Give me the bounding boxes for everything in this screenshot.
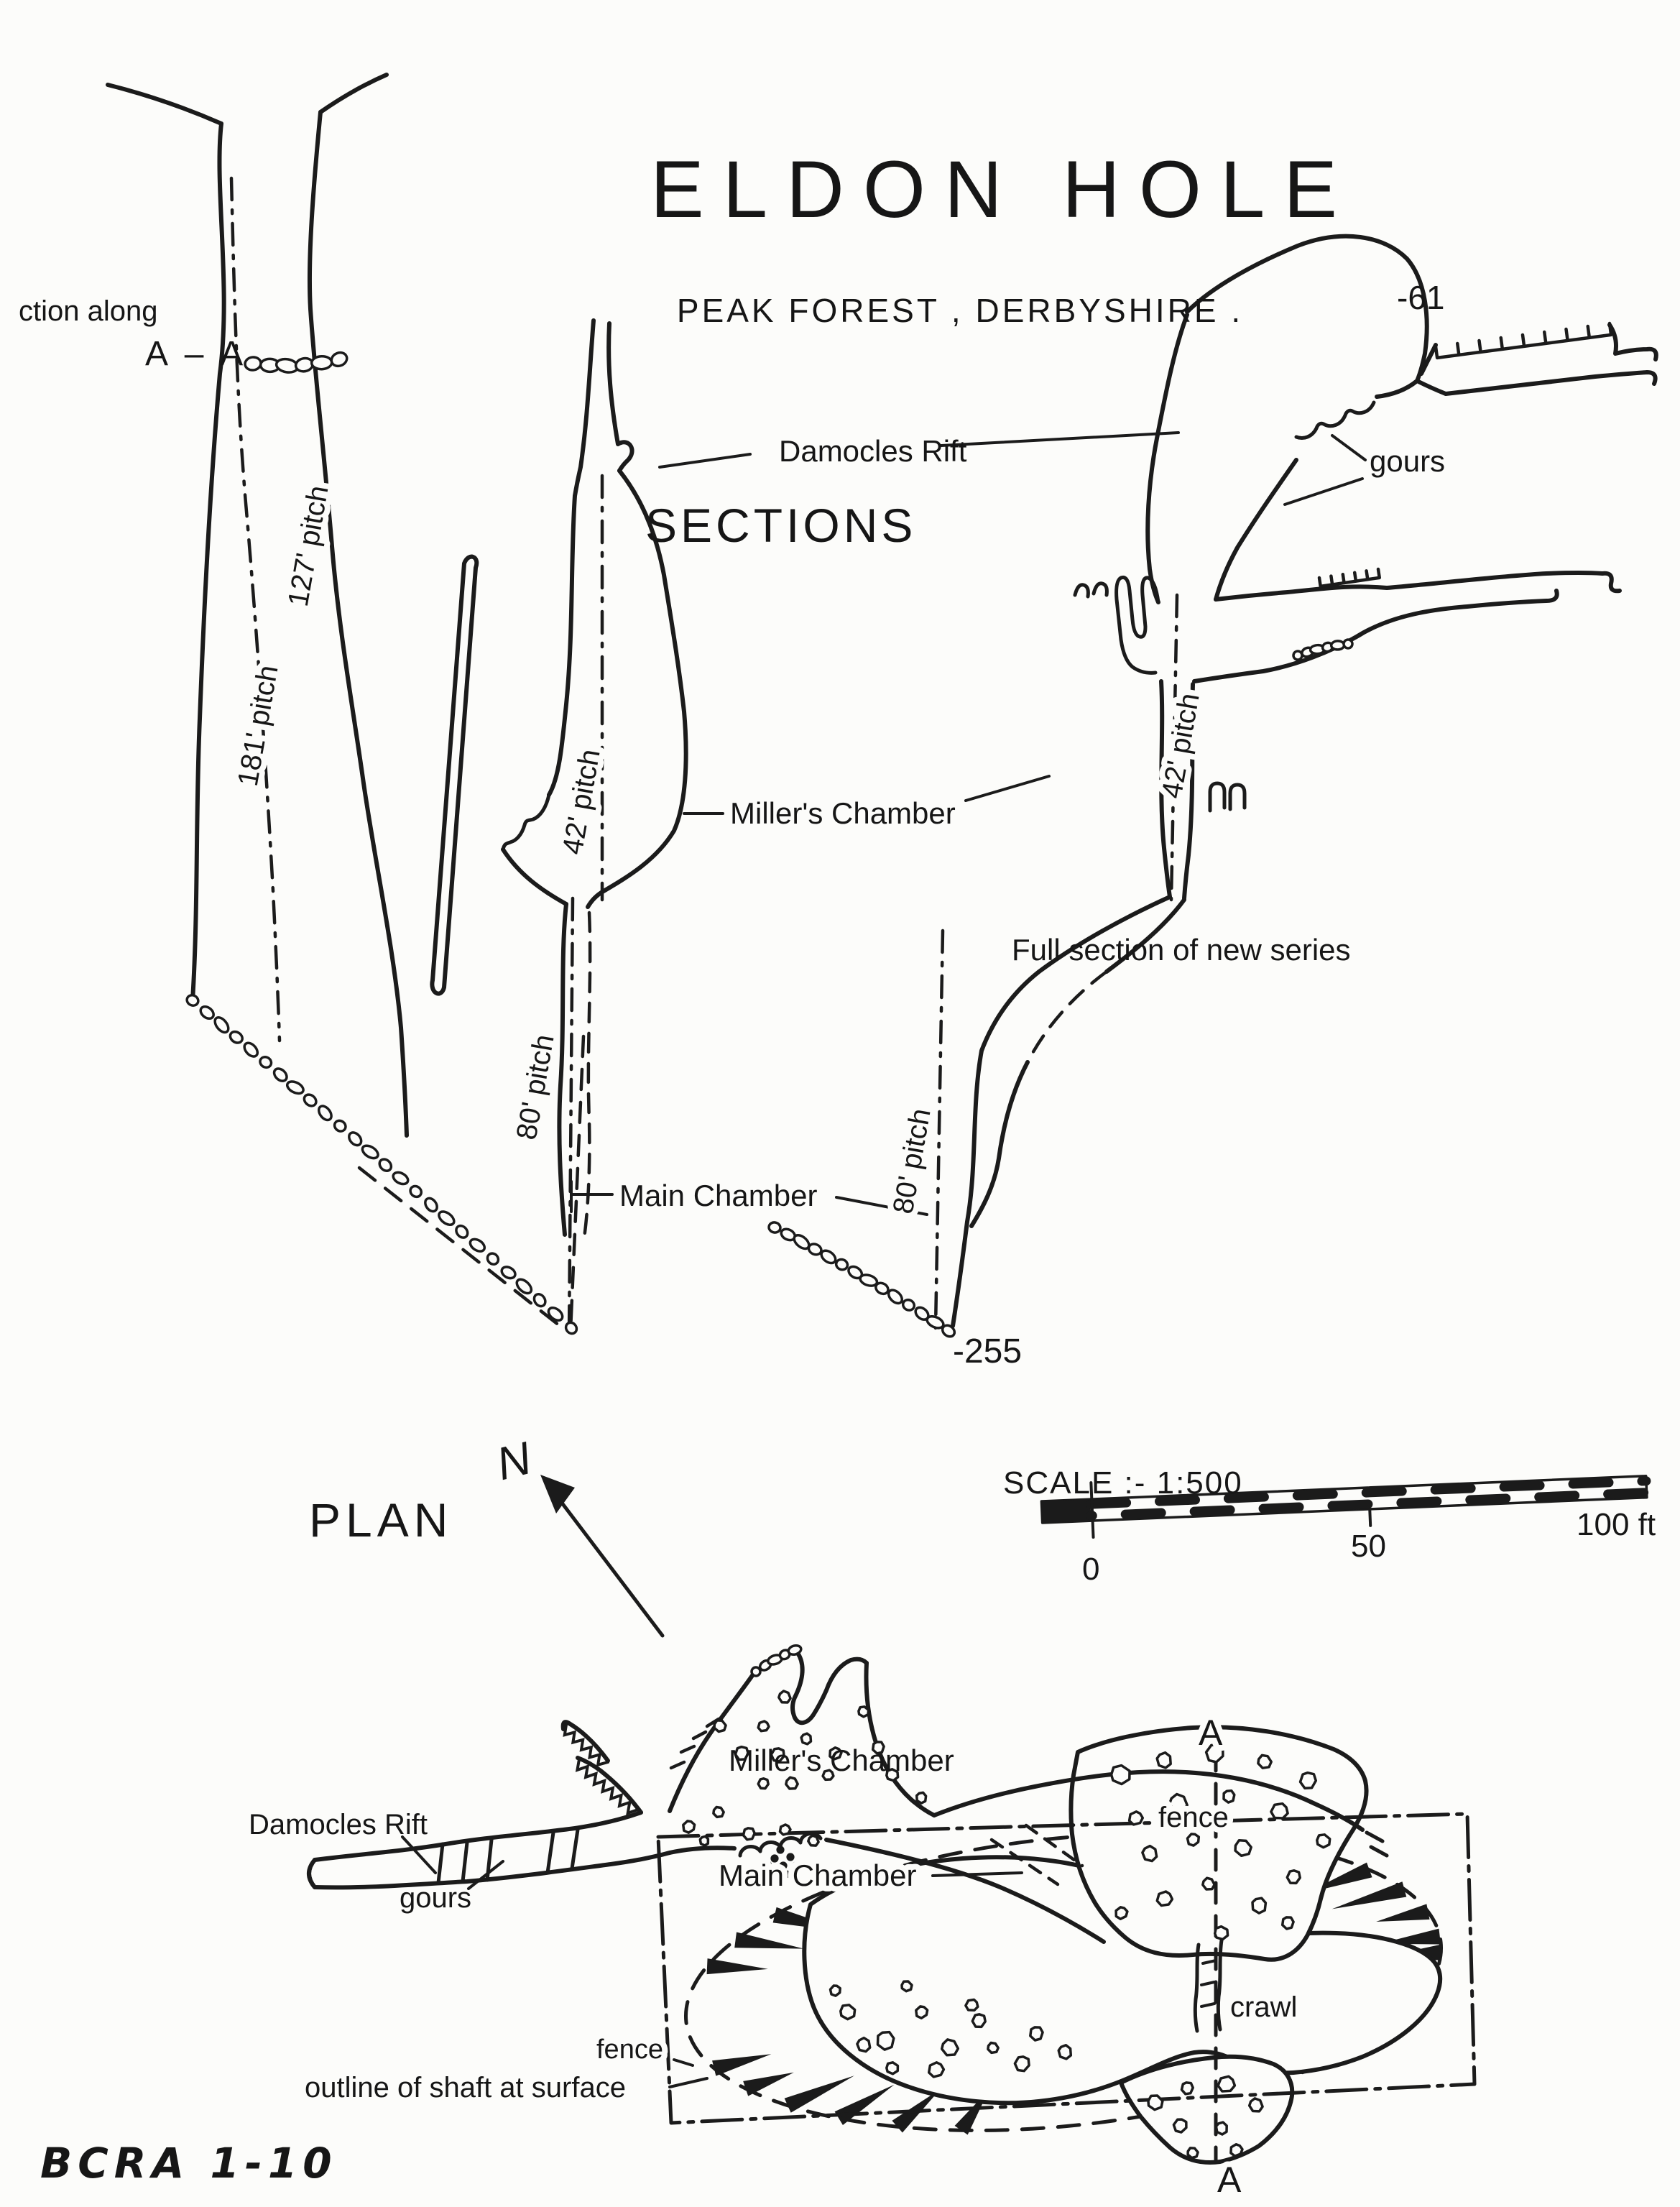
p1-floor bbox=[1446, 372, 1656, 394]
label-pitch-80-right: 80' pitch bbox=[887, 1106, 937, 1216]
section-note-line1: ction along bbox=[19, 295, 157, 327]
plan-drawing bbox=[309, 1460, 1648, 2165]
page-title: ELDON HOLE bbox=[650, 144, 1356, 234]
label-depth-top: -61 bbox=[1397, 279, 1444, 316]
label-gours-plan: gours bbox=[400, 1882, 471, 1914]
label-crawl: crawl bbox=[1230, 1991, 1297, 2023]
gour-dams-nn bbox=[1210, 783, 1245, 811]
north-arrow-head bbox=[540, 1475, 575, 1513]
scale-tick-0: 0 bbox=[1082, 1552, 1099, 1587]
pitch-line-127-181 bbox=[231, 178, 280, 1041]
cave-survey-drawing: ELDON HOLE PEAK FOREST , DERBYSHIRE . ct… bbox=[0, 0, 1680, 2207]
p3-lower-wall-c bbox=[971, 1062, 1028, 1226]
section-note-line2: A – A bbox=[145, 335, 247, 373]
scale-tick-100: 100 ft bbox=[1577, 1507, 1656, 1542]
sections-drawing bbox=[108, 75, 1656, 1339]
double-tick bbox=[1367, 1833, 1387, 1856]
label-a-top: A bbox=[1199, 1713, 1223, 1753]
nw-prong-2 bbox=[563, 1722, 608, 1761]
scale-label: SCALE :- 1:500 bbox=[1003, 1465, 1243, 1501]
east-passage-lower-wall bbox=[670, 1848, 734, 1853]
left-shaft-wall-left bbox=[193, 124, 224, 1000]
sections-heading: SECTIONS bbox=[645, 499, 916, 552]
label-depth-bottom: -255 bbox=[953, 1332, 1022, 1370]
label-fence: fence bbox=[1158, 1802, 1229, 1833]
pitch-line-80-right bbox=[936, 931, 943, 1328]
bowl-gour-arcs bbox=[1296, 402, 1374, 438]
label-pitch-181: 181' pitch bbox=[232, 663, 285, 788]
south-boulder-tongue bbox=[1121, 2057, 1292, 2162]
ne-branch-inner bbox=[793, 1653, 867, 1723]
mid-chamber-wall-left bbox=[549, 496, 575, 795]
p2-floor bbox=[1194, 591, 1557, 681]
label-main-chamber-plan: Main Chamber bbox=[719, 1858, 916, 1892]
north-arrow-line bbox=[559, 1499, 663, 1636]
label-millers-chamber-plan: Miller's Chamber bbox=[729, 1743, 954, 1777]
scale-tick-50: 50 bbox=[1351, 1529, 1386, 1564]
p2-upper-wall bbox=[1216, 573, 1620, 599]
label-full-section: Full section of new series bbox=[1012, 933, 1351, 967]
survey-sheet: ELDON HOLE PEAK FOREST , DERBYSHIRE . ct… bbox=[0, 0, 1680, 2207]
damocles-wiggle bbox=[1075, 584, 1107, 596]
p3-lower-wall-b bbox=[1028, 972, 1107, 1062]
mid-gour-wiggles bbox=[503, 795, 549, 849]
page-subtitle: PEAK FOREST , DERBYSHIRE . bbox=[677, 292, 1243, 329]
left-shaft-wall-right bbox=[310, 112, 407, 1135]
label-pitch-80-left: 80' pitch bbox=[511, 1032, 560, 1142]
label-damocles-rift-section: Damocles Rift bbox=[779, 434, 967, 468]
left-shaft-surface-left bbox=[108, 85, 221, 124]
bowl-step bbox=[1377, 381, 1417, 397]
label-main-chamber-section: Main Chamber bbox=[619, 1179, 817, 1212]
north-letter: N bbox=[491, 1432, 537, 1490]
mid-chamber-floor bbox=[503, 849, 566, 904]
label-fence-left: fence bbox=[596, 2035, 663, 2065]
label-a-bottom: A bbox=[1217, 2160, 1242, 2200]
plan-heading: PLAN bbox=[309, 1493, 453, 1547]
right-prongs bbox=[1117, 577, 1158, 673]
ne-branch-wall-left bbox=[670, 1674, 753, 1811]
p1-right-step bbox=[1610, 325, 1656, 359]
bowl-wall-left bbox=[1148, 315, 1187, 602]
credit: BCRA 1-10 bbox=[40, 2139, 338, 2188]
label-gours-section: gours bbox=[1370, 444, 1445, 478]
mid-80-wall-left bbox=[559, 904, 566, 1235]
dashed-floor-left bbox=[359, 1168, 566, 1331]
mid-rift-wall-left bbox=[575, 321, 594, 496]
label-shaft-outline: outline of shaft at surface bbox=[305, 2072, 626, 2104]
p1-floor-connector bbox=[1417, 381, 1446, 394]
narrow-rift-sliver bbox=[432, 557, 476, 994]
label-millers-chamber-section: Miller's Chamber bbox=[730, 796, 956, 830]
label-damocles-rift-plan: Damocles Rift bbox=[249, 1809, 428, 1840]
left-shaft-surface-right bbox=[320, 75, 387, 112]
west-passage-end-cap bbox=[309, 1860, 315, 1887]
mid-rift-wall-right bbox=[609, 323, 632, 471]
label-pitch-42-left: 42' pitch bbox=[557, 747, 606, 857]
bowl-inner-wall bbox=[1216, 460, 1296, 599]
label-pitch-127: 127' pitch bbox=[282, 483, 335, 609]
